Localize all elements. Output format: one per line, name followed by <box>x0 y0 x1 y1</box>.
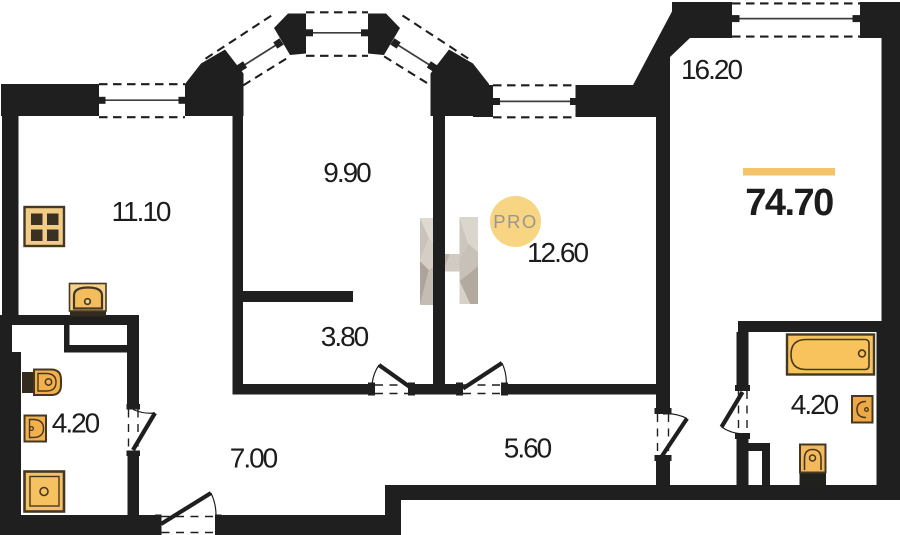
svg-text:9.90: 9.90 <box>323 157 371 188</box>
svg-text:PRO: PRO <box>493 211 538 232</box>
svg-text:11.10: 11.10 <box>112 196 171 227</box>
svg-text:5.60: 5.60 <box>504 433 552 464</box>
svg-text:74.70: 74.70 <box>745 182 833 224</box>
svg-text:3.80: 3.80 <box>321 321 369 352</box>
svg-text:4.20: 4.20 <box>52 408 100 439</box>
svg-text:16.20: 16.20 <box>681 54 742 85</box>
svg-text:7.00: 7.00 <box>230 443 278 474</box>
svg-text:4.20: 4.20 <box>791 389 839 420</box>
svg-text:12.60: 12.60 <box>527 237 588 268</box>
